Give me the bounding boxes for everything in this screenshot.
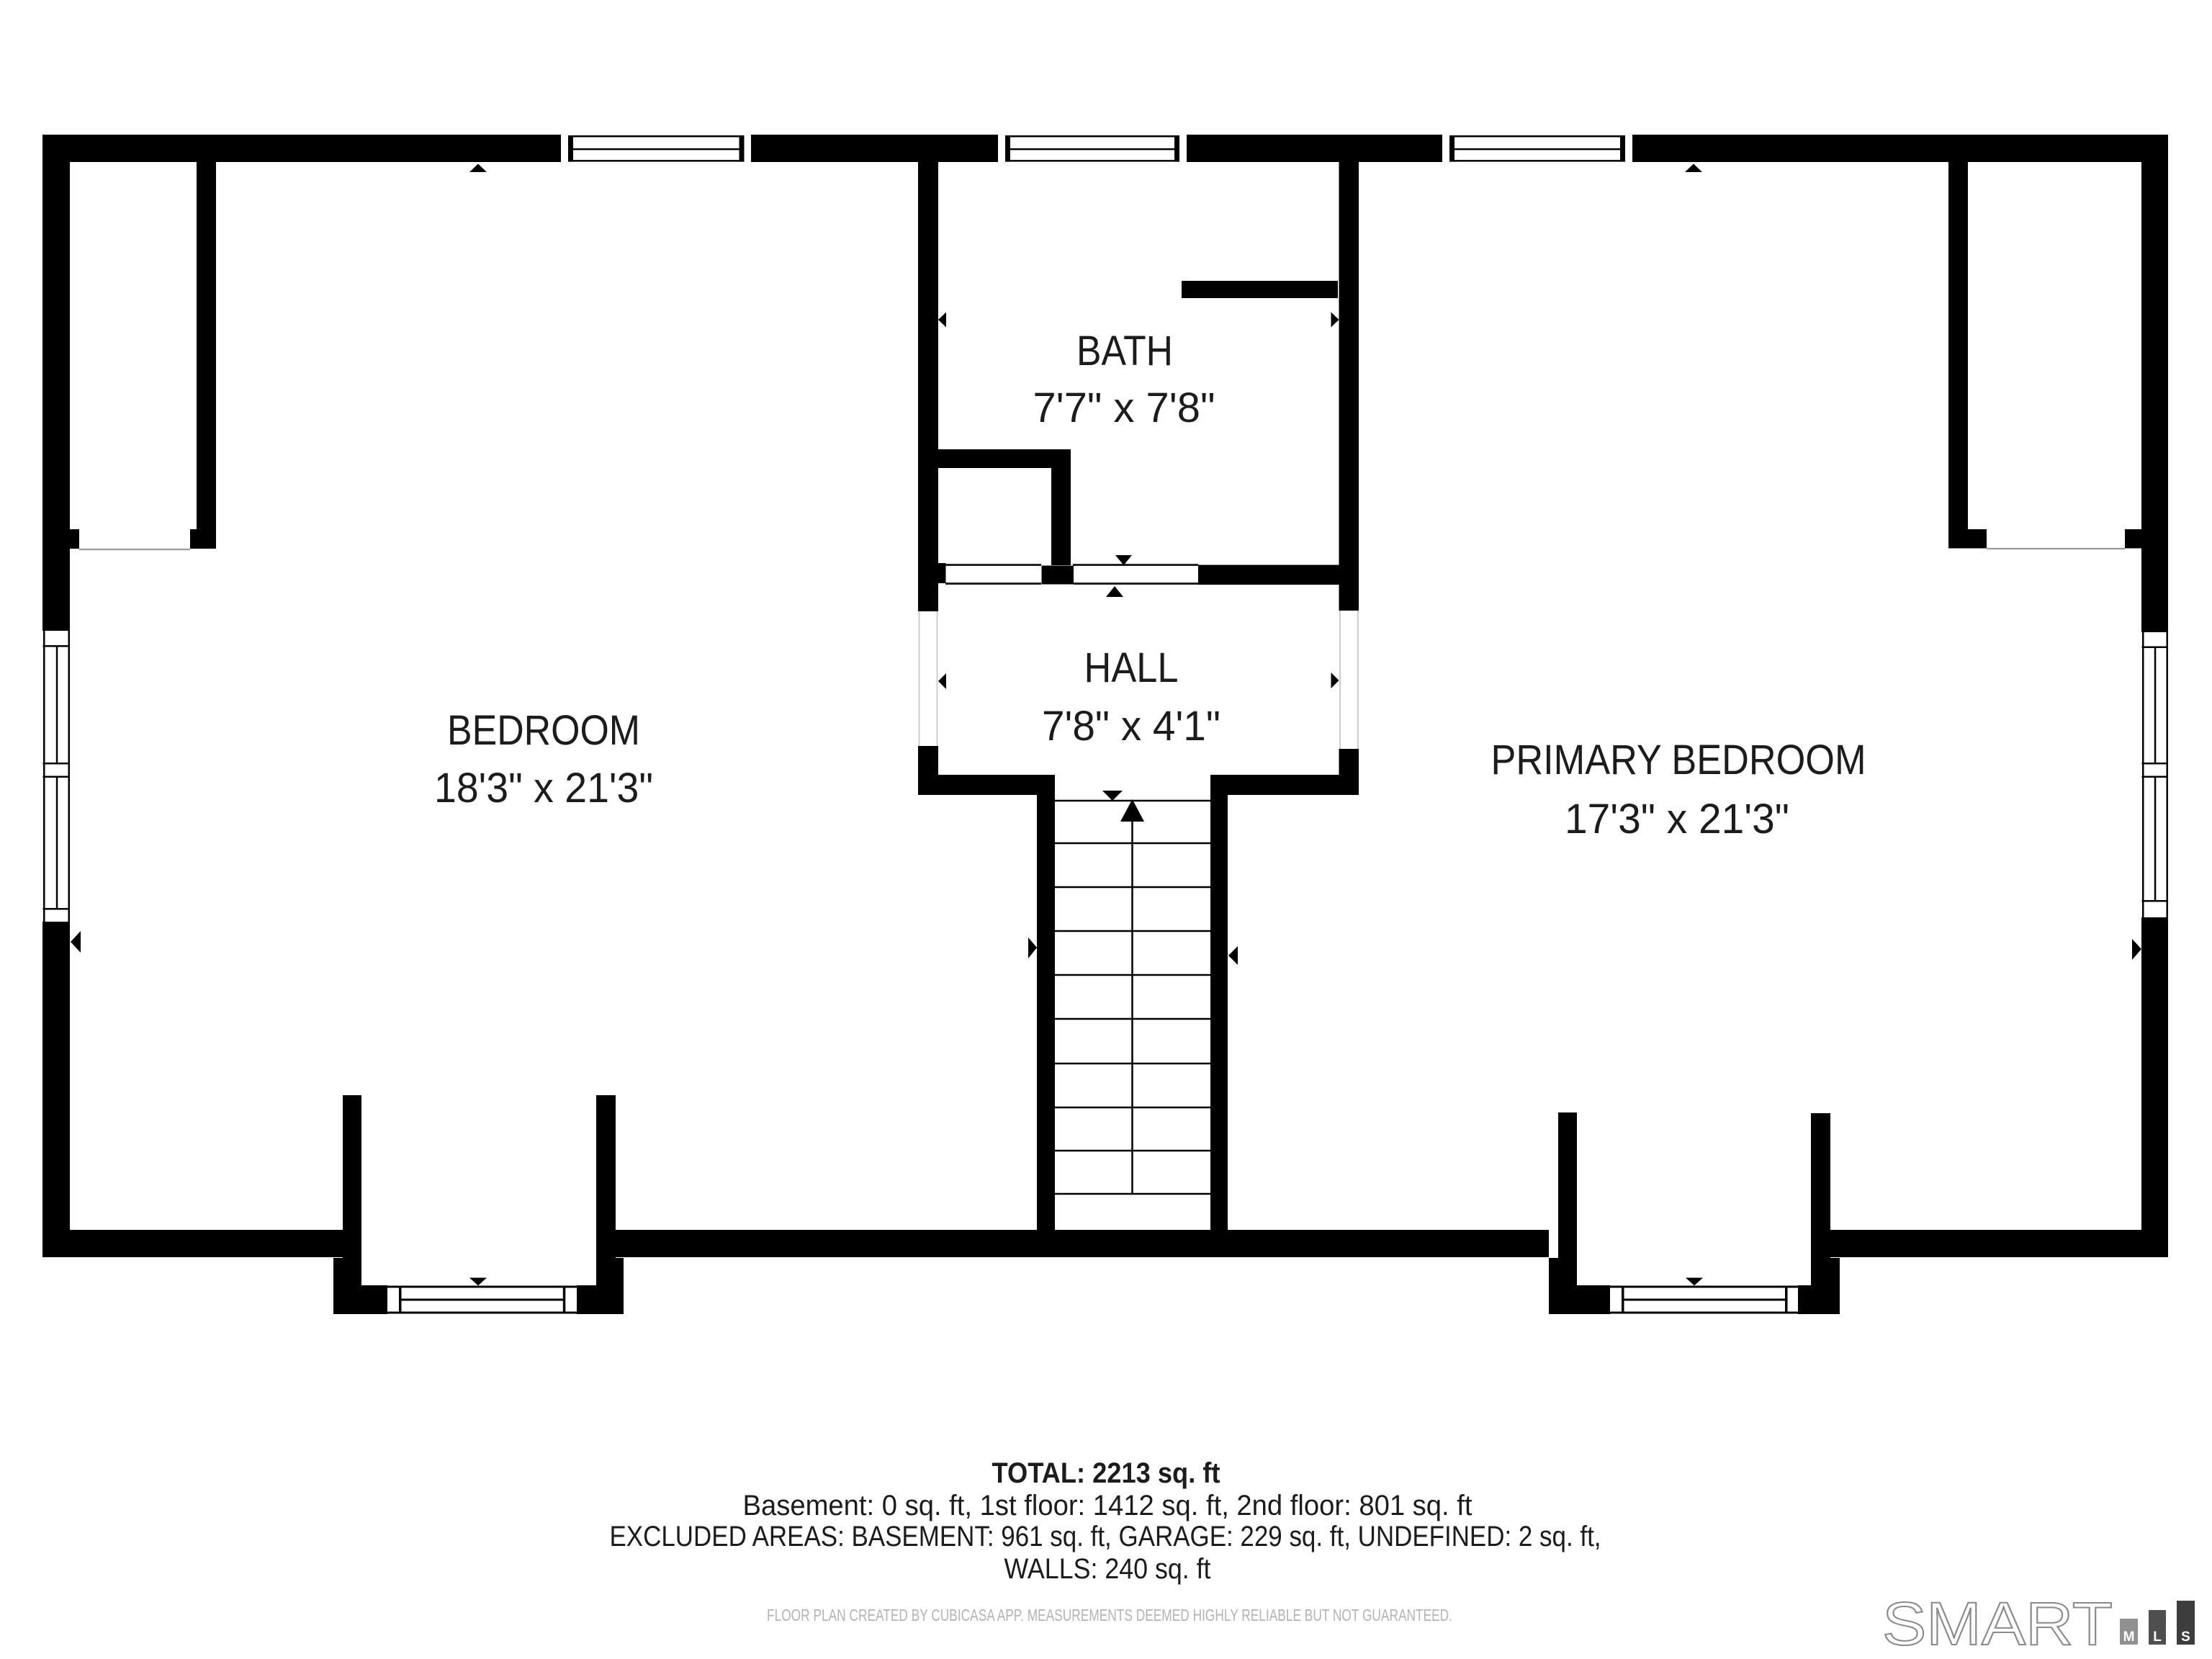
svg-text:7'7" x 7'8": 7'7" x 7'8" <box>1033 385 1215 431</box>
svg-text:BATH: BATH <box>1076 328 1173 374</box>
svg-text:TOTAL: 2213 sq. ft: TOTAL: 2213 sq. ft <box>992 1457 1220 1489</box>
svg-text:EXCLUDED AREAS: BASEMENT: 961: EXCLUDED AREAS: BASEMENT: 961 sq. ft, GA… <box>610 1521 1601 1552</box>
svg-text:S: S <box>2181 1629 2190 1645</box>
svg-text:7'8" x 4'1": 7'8" x 4'1" <box>1042 703 1220 750</box>
svg-text:17'3" x 21'3": 17'3" x 21'3" <box>1565 796 1789 842</box>
svg-text:FLOOR PLAN CREATED BY CUBICASA: FLOOR PLAN CREATED BY CUBICASA APP. MEAS… <box>767 1606 1452 1624</box>
svg-text:SMART: SMART <box>1882 1590 2113 1658</box>
svg-text:HALL: HALL <box>1084 644 1179 691</box>
svg-text:M: M <box>2123 1629 2135 1645</box>
svg-text:18'3" x 21'3": 18'3" x 21'3" <box>434 765 653 811</box>
svg-text:L: L <box>2153 1629 2162 1645</box>
svg-text:BEDROOM: BEDROOM <box>447 707 640 754</box>
svg-text:Basement: 0 sq. ft, 1st floor:: Basement: 0 sq. ft, 1st floor: 1412 sq. … <box>743 1490 1473 1521</box>
svg-text:WALLS: 240 sq. ft: WALLS: 240 sq. ft <box>1004 1553 1211 1585</box>
svg-text:PRIMARY BEDROOM: PRIMARY BEDROOM <box>1491 737 1866 783</box>
